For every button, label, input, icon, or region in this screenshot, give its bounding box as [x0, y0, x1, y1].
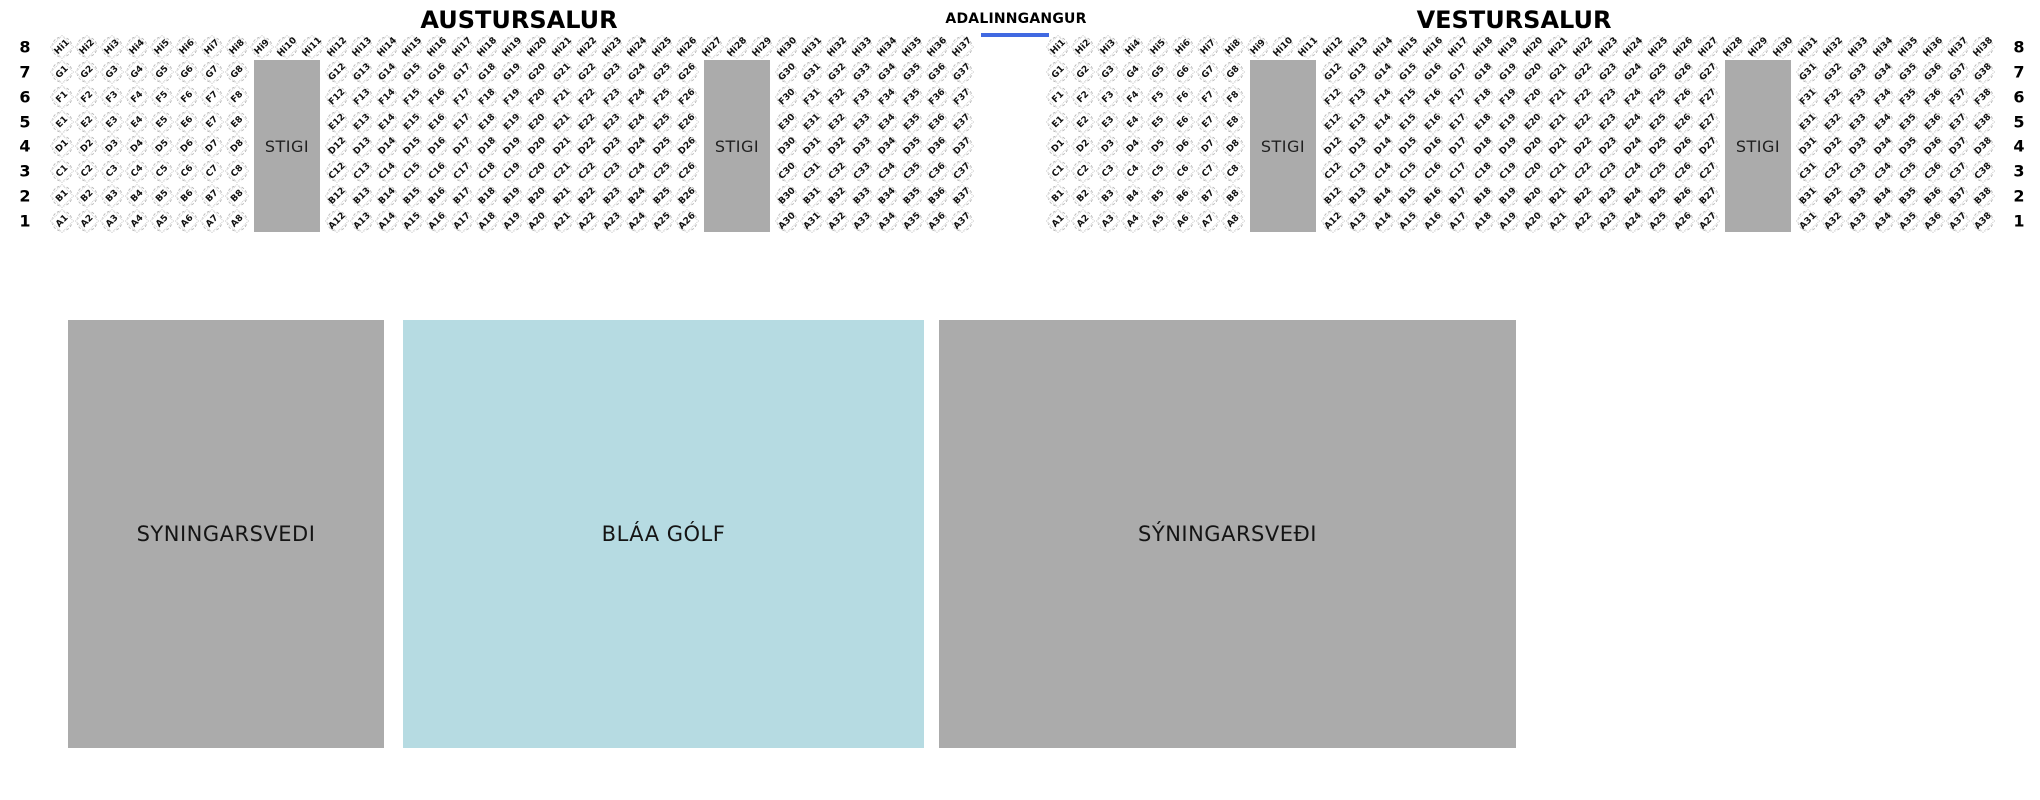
floor-area-blaa-golf[interactable]: BLÁA GÓLF	[403, 320, 924, 748]
row-number-left-2: 2	[19, 187, 30, 206]
row-number-left-8: 8	[19, 38, 30, 57]
seat-label: A38	[1965, 203, 2000, 238]
floor-area-label: SÝNINGARSVEÐI	[1138, 522, 1317, 546]
row-number-right-8: 8	[2013, 38, 2024, 57]
floor-area-label: BLÁA GÓLF	[602, 522, 726, 546]
seat-vestursalur-A38[interactable]: A38	[1971, 208, 1996, 233]
seat-vestursalur-A27[interactable]: A27	[1696, 208, 1721, 233]
row-number-right-1: 1	[2013, 211, 2024, 230]
stairs-block-vestursalur: STIGI	[1250, 60, 1316, 232]
stairs-block-austursalur: STIGI	[254, 60, 320, 232]
row-number-right-5: 5	[2013, 112, 2024, 131]
row-number-left-7: 7	[19, 62, 30, 81]
main-entrance-label: ADALINNGANGUR	[945, 11, 1086, 27]
seat-label: A27	[1690, 203, 1725, 238]
row-number-right-4: 4	[2013, 137, 2024, 156]
floor-area-syningarsvedi-right: SÝNINGARSVEÐI	[939, 320, 1516, 748]
seat-vestursalur-A8[interactable]: A8	[1221, 208, 1246, 233]
row-number-left-5: 5	[19, 112, 30, 131]
row-number-left-1: 1	[19, 211, 30, 230]
seat-label: A8	[219, 203, 254, 238]
row-number-left-4: 4	[19, 137, 30, 156]
seat-austursalur-A8[interactable]: A8	[225, 208, 250, 233]
row-number-left-3: 3	[19, 162, 30, 181]
row-number-left-6: 6	[19, 87, 30, 106]
stairs-block-vestursalur: STIGI	[1725, 60, 1791, 232]
floor-area-label: SYNINGARSVEDI	[137, 522, 316, 546]
seat-austursalur-A37[interactable]: A37	[950, 208, 975, 233]
seat-label: A37	[944, 203, 979, 238]
row-number-right-2: 2	[2013, 187, 2024, 206]
main-entrance-marker	[981, 33, 1049, 37]
stairs-block-austursalur: STIGI	[704, 60, 770, 232]
row-number-right-6: 6	[2013, 87, 2024, 106]
row-number-right-7: 7	[2013, 62, 2024, 81]
seat-austursalur-A26[interactable]: A26	[675, 208, 700, 233]
seat-label: A26	[669, 203, 704, 238]
floor-area-syningarsvedi-left: SYNINGARSVEDI	[68, 320, 384, 748]
seat-label: A8	[1215, 203, 1250, 238]
row-number-right-3: 3	[2013, 162, 2024, 181]
